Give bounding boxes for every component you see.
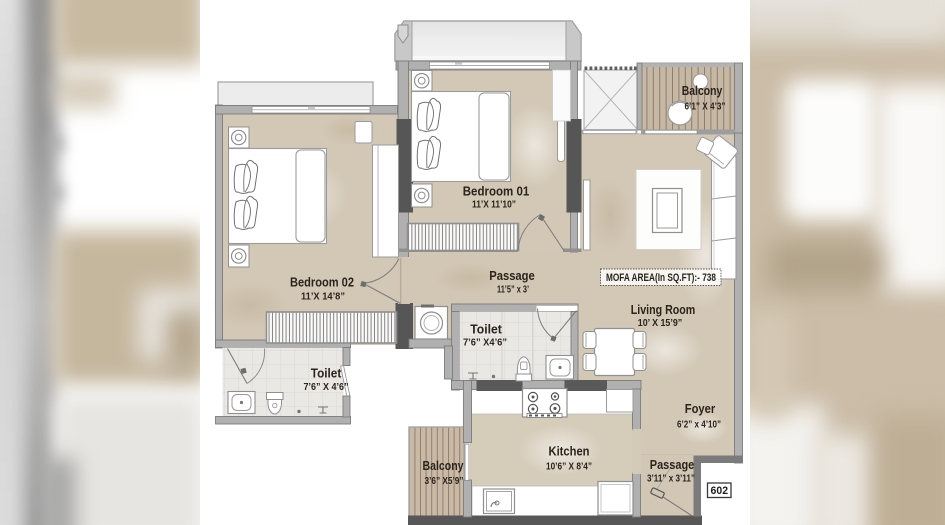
svg-text:10’6” X 8’4”: 10’6” X 8’4”: [546, 462, 592, 473]
svg-text:602: 602: [711, 485, 729, 497]
svg-text:3’6” X5’9”: 3’6” X5’9”: [425, 476, 464, 487]
svg-text:11’X 11’10”: 11’X 11’10”: [472, 200, 516, 211]
svg-text:11’5” x 3’: 11’5” x 3’: [497, 285, 529, 296]
svg-text:Balcony: Balcony: [682, 84, 723, 98]
svg-text:Balcony: Balcony: [423, 459, 464, 473]
svg-text:Living Room: Living Room: [631, 302, 696, 317]
svg-text:Bedroom 02: Bedroom 02: [290, 275, 354, 290]
svg-text:Foyer: Foyer: [685, 401, 716, 416]
svg-text:Kitchen: Kitchen: [549, 444, 590, 459]
svg-text:10’ X 15’9”: 10’ X 15’9”: [638, 318, 683, 329]
svg-text:Toilet: Toilet: [470, 322, 502, 337]
svg-text:MOFA AREA(In SQ.FT):- 738: MOFA AREA(In SQ.FT):- 738: [606, 272, 716, 284]
svg-text:Bedroom 01: Bedroom 01: [463, 184, 530, 199]
svg-text:6’1” X 4’3”: 6’1” X 4’3”: [685, 102, 726, 113]
svg-text:7’6” X4’6”: 7’6” X4’6”: [463, 338, 507, 349]
svg-text:Passage: Passage: [650, 457, 695, 472]
svg-text:7’6” X 4’6”: 7’6” X 4’6”: [304, 382, 349, 393]
svg-text:11’X 14’8”: 11’X 14’8”: [301, 292, 345, 303]
svg-text:6’2” x 4’10”: 6’2” x 4’10”: [677, 420, 721, 431]
svg-text:3’11” x 3’11”: 3’11” x 3’11”: [647, 474, 695, 485]
svg-text:Passage: Passage: [489, 268, 535, 283]
svg-text:Toilet: Toilet: [311, 366, 342, 381]
